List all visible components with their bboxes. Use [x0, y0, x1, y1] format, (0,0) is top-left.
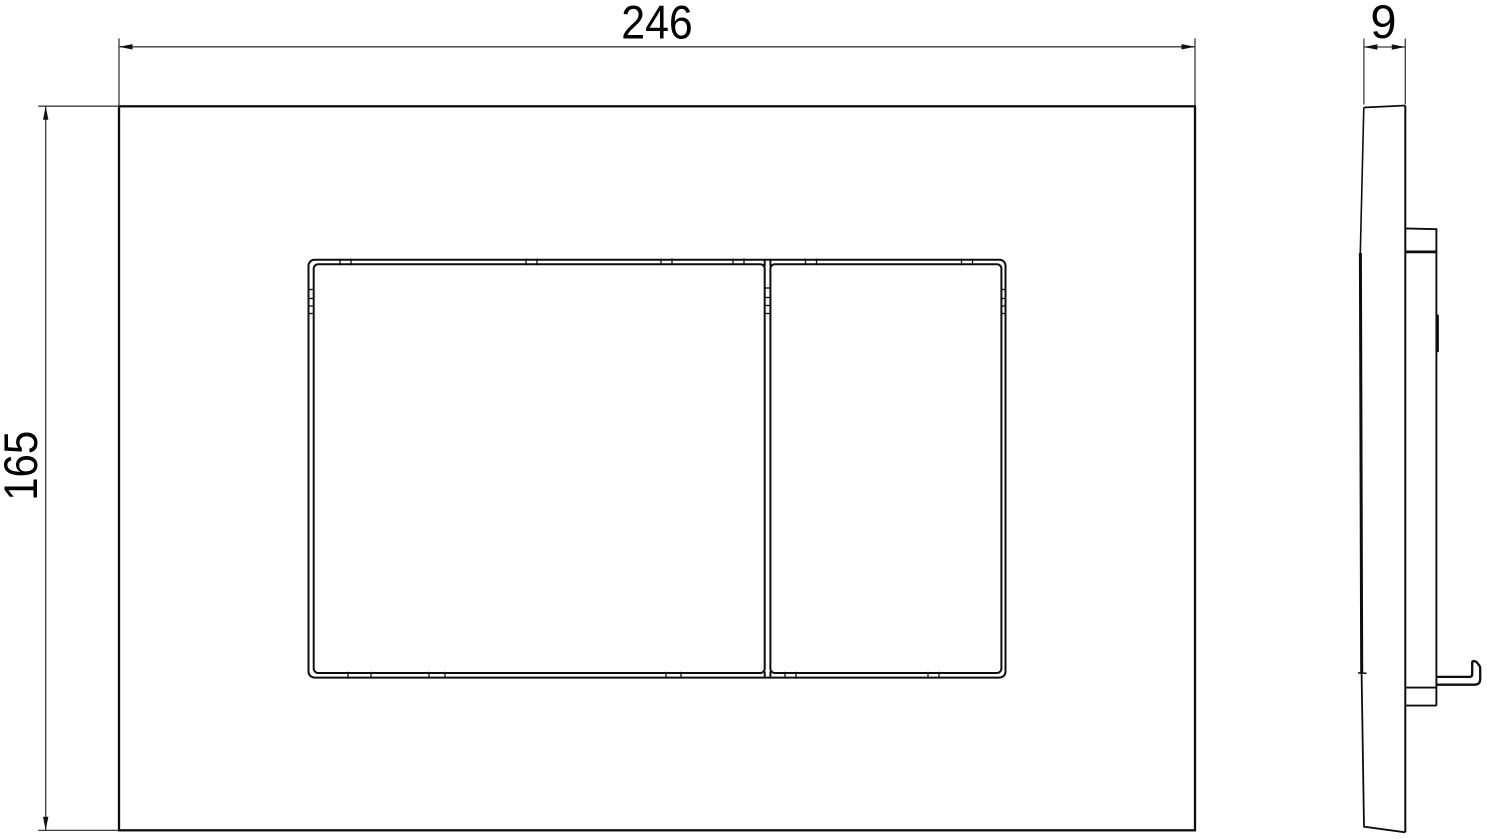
svg-text:165: 165	[0, 431, 47, 501]
svg-text:9: 9	[1370, 0, 1396, 48]
svg-text:246: 246	[621, 0, 693, 48]
